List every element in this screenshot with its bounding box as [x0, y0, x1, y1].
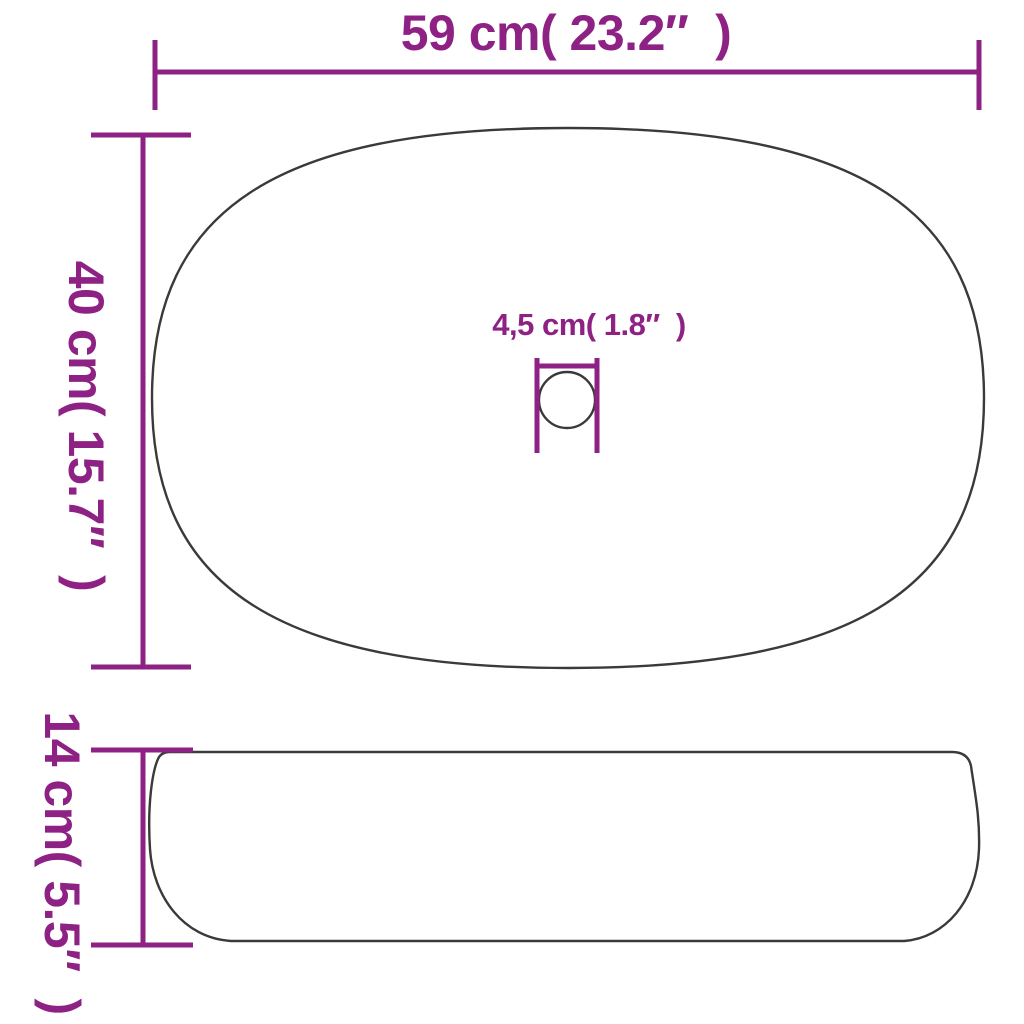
- depth-dimension-label: 40 cm( 15.7″ ): [57, 261, 115, 592]
- height-dimension-label: 14 cm( 5.5″ ): [33, 711, 91, 1014]
- drain-hole-circle: [539, 372, 595, 428]
- drain-diameter-label: 4,5 cm( 1.8″ ): [492, 307, 685, 343]
- basin-side-view-outline: [149, 752, 979, 941]
- width-dimension-label: 59 cm( 23.2″ ): [401, 4, 732, 62]
- dimension-diagram: 59 cm( 23.2″ ) 40 cm( 15.7″ ) 4,5 cm( 1.…: [0, 0, 1024, 1024]
- basin-top-view-outline: [152, 128, 984, 668]
- diagram-drawing: [0, 0, 1024, 1024]
